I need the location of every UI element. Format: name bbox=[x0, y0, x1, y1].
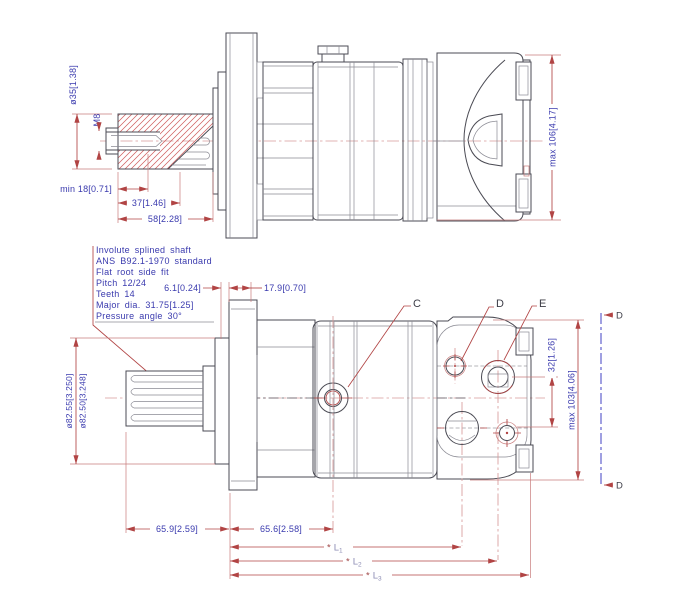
spline-note-block: Involute splined shaft ANS B92.1-1970 st… bbox=[93, 245, 214, 381]
mounting-flange-front bbox=[229, 300, 257, 490]
pilot-plate bbox=[218, 72, 226, 210]
front-housing-bottom bbox=[257, 320, 315, 477]
dim-shaft-dia-text: ø35[1.38] bbox=[68, 65, 78, 105]
drawing-canvas: ø35[1.38] M8 min 18[0.71] 37[1.46] 58[2.… bbox=[0, 0, 679, 614]
dim-pilot-dia-max-text: ø82.55[3.250] bbox=[64, 373, 74, 428]
dim-shaft-length-text: 58[2.28] bbox=[148, 214, 182, 224]
dim-shaft-step-text: 37[1.46] bbox=[132, 198, 166, 208]
splined-shaft bbox=[126, 366, 215, 431]
dim-bottom-lengths: 65.9[2.59] 65.6[2.58] *L1 *L2 *L3 bbox=[126, 432, 531, 583]
thread-label-text: M8 bbox=[92, 114, 102, 127]
section-line-dd: D D bbox=[601, 311, 623, 492]
dim-flange-thickness-text: 17.9[0.70] bbox=[264, 283, 306, 293]
dim-pilot-gap-text: 6.1[0.24] bbox=[164, 283, 201, 293]
section-label-bottom: D bbox=[616, 481, 623, 492]
dim-thread-depth-text: min 18[0.71] bbox=[60, 184, 112, 194]
port-lower-right bbox=[493, 419, 521, 447]
port-e-label: E bbox=[539, 298, 546, 310]
motor-dimension-drawing: ø35[1.38] M8 min 18[0.71] 37[1.46] 58[2.… bbox=[0, 0, 679, 614]
valve-housing bbox=[437, 317, 533, 560]
end-cover bbox=[433, 53, 531, 221]
motor-body bbox=[313, 46, 433, 221]
dim-top-height-text: max 106[4.17] bbox=[548, 107, 558, 167]
dim-shaft-to-flange-text: 65.9[2.59] bbox=[156, 524, 198, 534]
dim-flange-to-port-text: 65.6[2.58] bbox=[260, 524, 302, 534]
bottom-view: C D E 6.1[0.24] 17.9[0.70] ø82.55[3.250]… bbox=[64, 282, 623, 583]
pilot-boss bbox=[215, 338, 229, 464]
mounting-flange-side bbox=[226, 33, 263, 238]
note-line-2: ANS B92.1-1970 standard bbox=[96, 256, 212, 266]
dim-pilot-dia-min-text: ø82.50[3.248] bbox=[78, 373, 88, 428]
note-line-4: Pitch 12/24 bbox=[96, 278, 146, 288]
casting-profile bbox=[464, 60, 505, 221]
dim-port-spacing-text: 32[1.26] bbox=[547, 338, 557, 372]
top-view: ø35[1.38] M8 min 18[0.71] 37[1.46] 58[2.… bbox=[60, 33, 561, 238]
port-d-label: D bbox=[496, 298, 504, 310]
note-line-1: Involute splined shaft bbox=[96, 245, 191, 255]
port-c-label: C bbox=[413, 298, 421, 310]
section-label-top: D bbox=[616, 311, 623, 322]
hex-plug bbox=[318, 46, 348, 62]
note-line-7: Pressure angle 30° bbox=[96, 311, 182, 321]
note-line-3: Flat root side fit bbox=[96, 267, 169, 277]
dim-top-height: max 106[4.17] bbox=[437, 55, 561, 220]
port-d bbox=[443, 354, 467, 378]
output-shaft-section bbox=[106, 114, 213, 169]
dim-bottom-height-text: max 103[4.06] bbox=[567, 370, 577, 430]
note-line-6: Major dia. 31.75[1.25] bbox=[96, 300, 194, 310]
note-line-5: Teeth 14 bbox=[96, 289, 135, 299]
motor-body-bottom bbox=[313, 316, 437, 534]
dim-shaft-diameter: ø35[1.38] bbox=[68, 65, 112, 169]
dim-thread: M8 bbox=[92, 114, 102, 158]
